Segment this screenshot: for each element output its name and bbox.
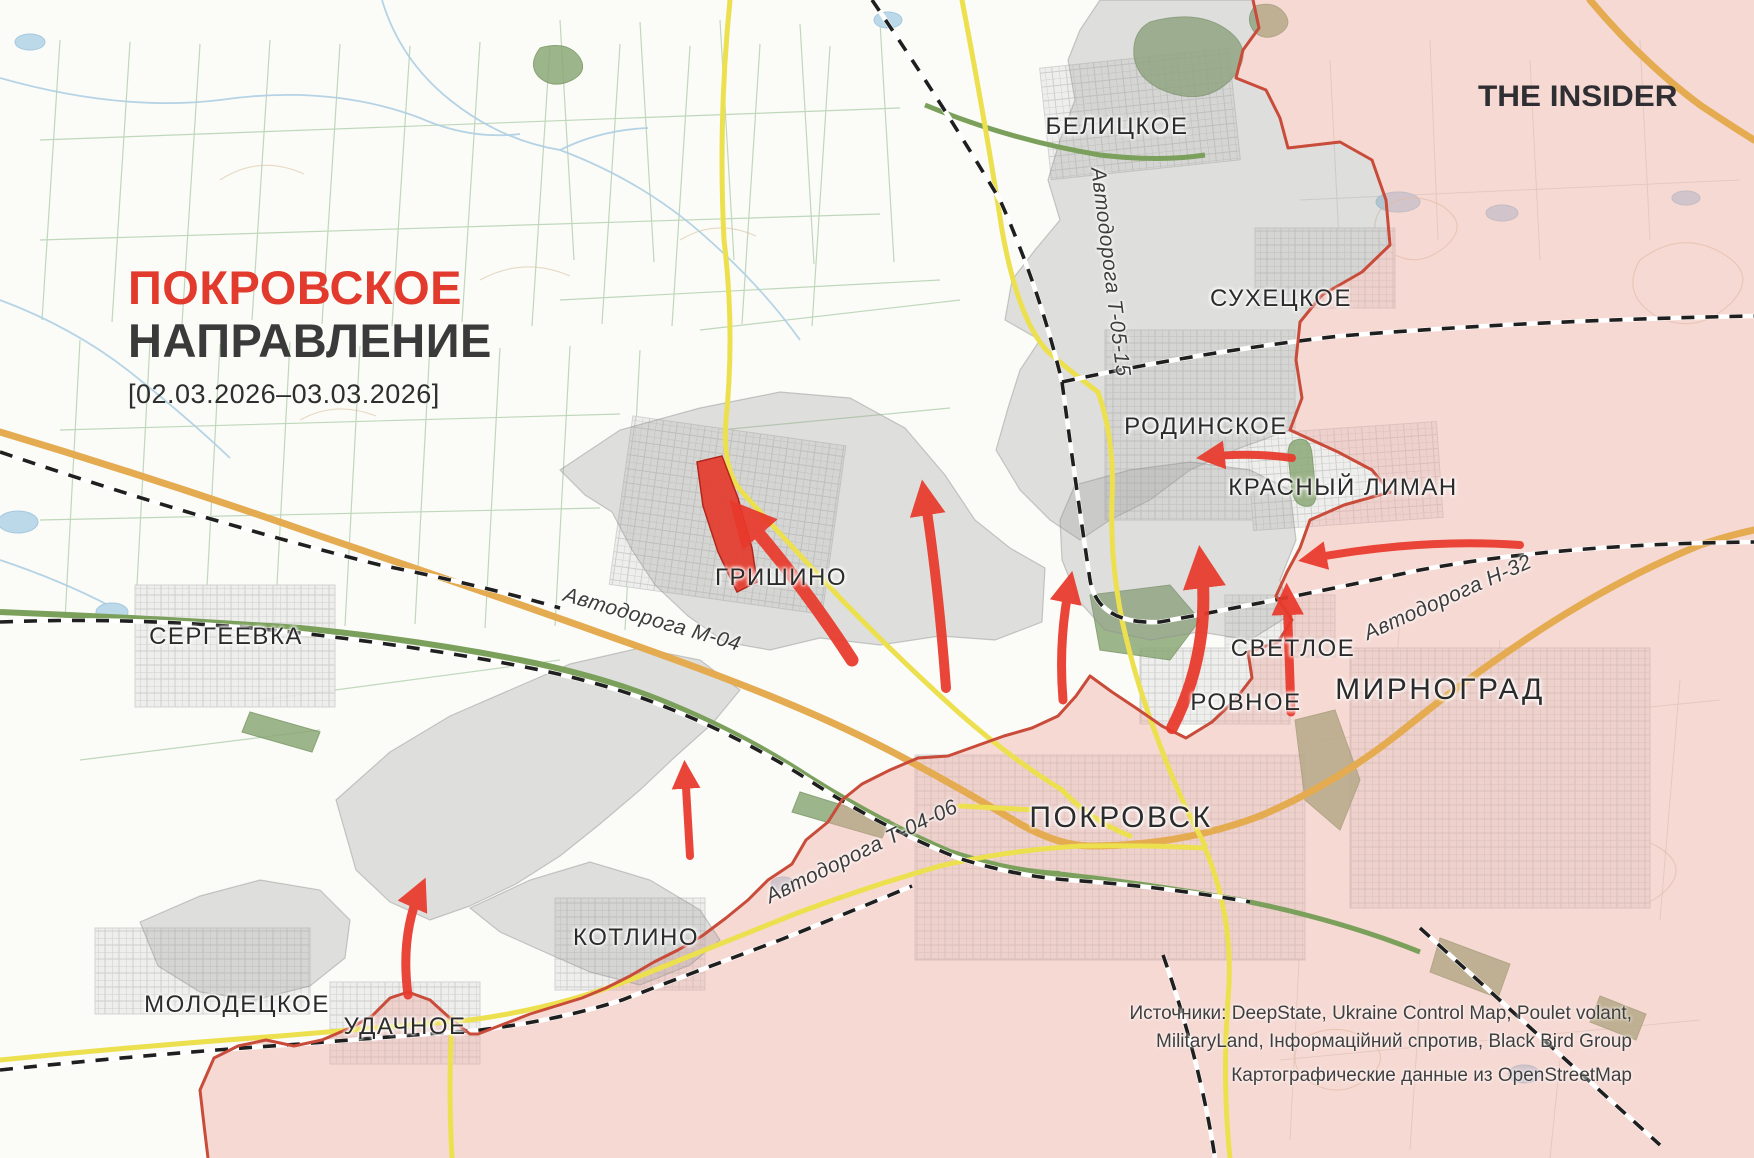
settlement-label-molodetskoye: МОЛОДЕЦКОЕ — [144, 991, 330, 1019]
page-title-word2: НАПРАВЛЕНИЕ — [128, 315, 492, 368]
sources-block: Источники: DeepState, Ukraine Control Ma… — [1129, 1000, 1632, 1090]
brand-logo: THE INSIDER — [1478, 80, 1678, 114]
settlement-label-rodinskoye: РОДИНСКОЕ — [1124, 413, 1288, 441]
date-range: [02.03.2026–03.03.2026] — [128, 379, 492, 409]
settlement-label-grishino: ГРИШИНО — [715, 564, 847, 592]
sources-line-1: Источники: DeepState, Ukraine Control Ma… — [1129, 1000, 1632, 1028]
settlement-label-rovnoye: РОВНОЕ — [1190, 689, 1301, 717]
settlement-label-svetloye: СВЕТЛОЕ — [1231, 635, 1355, 663]
settlement-label-sukhetskoye: СУХЕЦКОЕ — [1210, 285, 1352, 313]
title-block: ПОКРОВСКОЕ НАПРАВЛЕНИЕ [02.03.2026–03.03… — [128, 262, 492, 409]
settlement-label-sergeyevka: СЕРГЕЕВКА — [149, 623, 303, 651]
page-title-direction: ПОКРОВСКОЕ — [128, 262, 492, 315]
attack-arrow-rodinskoye — [1206, 455, 1292, 458]
sources-line-2: MilitaryLand, Інформаційний спротив, Bla… — [1129, 1028, 1632, 1056]
settlement-label-mirnograd: МИРНОГРАД — [1335, 673, 1545, 707]
sources-line-3: Картографические данные из OpenStreetMap — [1129, 1062, 1632, 1090]
settlement-label-krasny-liman: КРАСНЫЙ ЛИМАН — [1228, 474, 1458, 502]
map-canvas: ПОКРОВСКОЕ НАПРАВЛЕНИЕ [02.03.2026–03.03… — [0, 0, 1754, 1158]
attack-arrow-rovnoye-west — [1062, 582, 1070, 700]
settlement-label-kotlino: КОТЛИНО — [573, 924, 699, 952]
settlement-label-belitskoye: БЕЛИЦКОЕ — [1046, 113, 1189, 141]
attack-arrow-kotlino — [685, 770, 690, 856]
settlement-label-pokrovsk: ПОКРОВСК — [1029, 801, 1212, 835]
settlement-label-udachnoye: УДАЧНОЕ — [343, 1013, 466, 1041]
